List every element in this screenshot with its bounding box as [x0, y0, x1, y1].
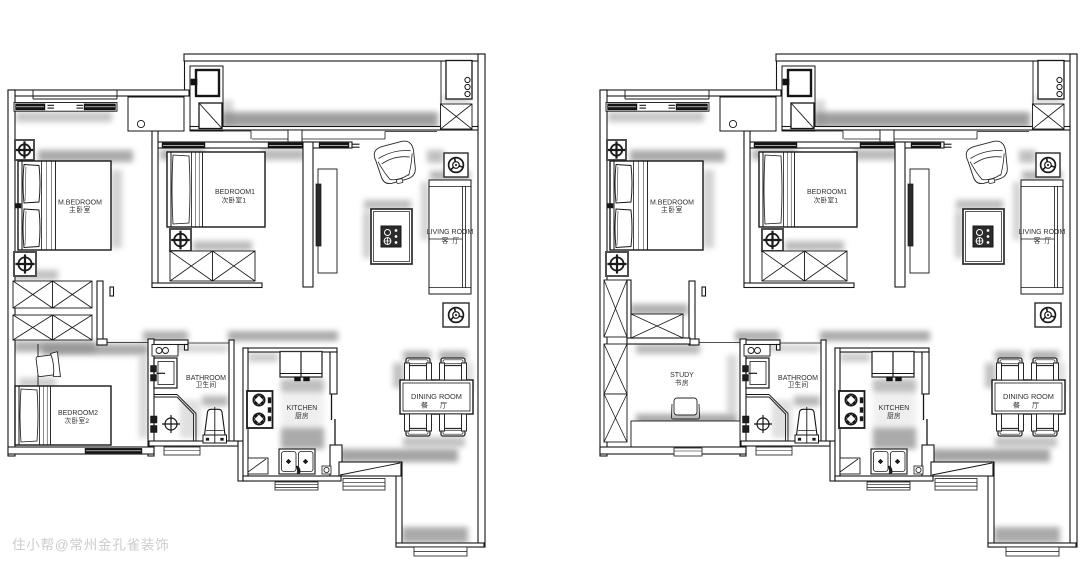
svg-text:次卧室2: 次卧室2: [65, 416, 90, 425]
svg-text:LIVING ROOM: LIVING ROOM: [427, 229, 474, 236]
svg-text:客 厅: 客 厅: [442, 236, 460, 245]
svg-text:DINING ROOM: DINING ROOM: [411, 392, 462, 401]
svg-text:餐 厅: 餐 厅: [1013, 401, 1044, 410]
svg-text:LIVING ROOM: LIVING ROOM: [1019, 229, 1066, 236]
svg-text:次卧室1: 次卧室1: [222, 196, 247, 205]
svg-text:卫生间: 卫生间: [788, 380, 809, 389]
svg-text:M.BEDROOM: M.BEDROOM: [650, 200, 694, 207]
svg-text:DINING ROOM: DINING ROOM: [1003, 392, 1054, 401]
svg-text:BATHROOM: BATHROOM: [186, 375, 226, 382]
svg-text:餐 厅: 餐 厅: [421, 401, 452, 410]
svg-text:次卧室1: 次卧室1: [814, 196, 839, 205]
svg-text:BEDROOM2: BEDROOM2: [58, 410, 98, 417]
svg-text:主卧室: 主卧室: [661, 205, 683, 214]
svg-text:书房: 书房: [675, 378, 689, 387]
svg-text:客 厅: 客 厅: [1034, 236, 1052, 245]
svg-text:KITCHEN: KITCHEN: [287, 405, 318, 412]
svg-text:厨房: 厨房: [887, 411, 901, 420]
svg-text:厨房: 厨房: [295, 411, 309, 420]
svg-text:卫生间: 卫生间: [196, 380, 217, 389]
svg-text:STUDY: STUDY: [670, 372, 694, 379]
svg-text:M.BEDROOM: M.BEDROOM: [58, 200, 102, 207]
svg-text:BEDROOM1: BEDROOM1: [807, 189, 847, 196]
svg-text:住小帮@常州金孔雀装饰: 住小帮@常州金孔雀装饰: [12, 538, 170, 553]
svg-text:主卧室: 主卧室: [69, 205, 91, 214]
svg-text:BATHROOM: BATHROOM: [778, 375, 818, 382]
svg-text:KITCHEN: KITCHEN: [879, 405, 910, 412]
svg-text:BEDROOM1: BEDROOM1: [215, 189, 255, 196]
